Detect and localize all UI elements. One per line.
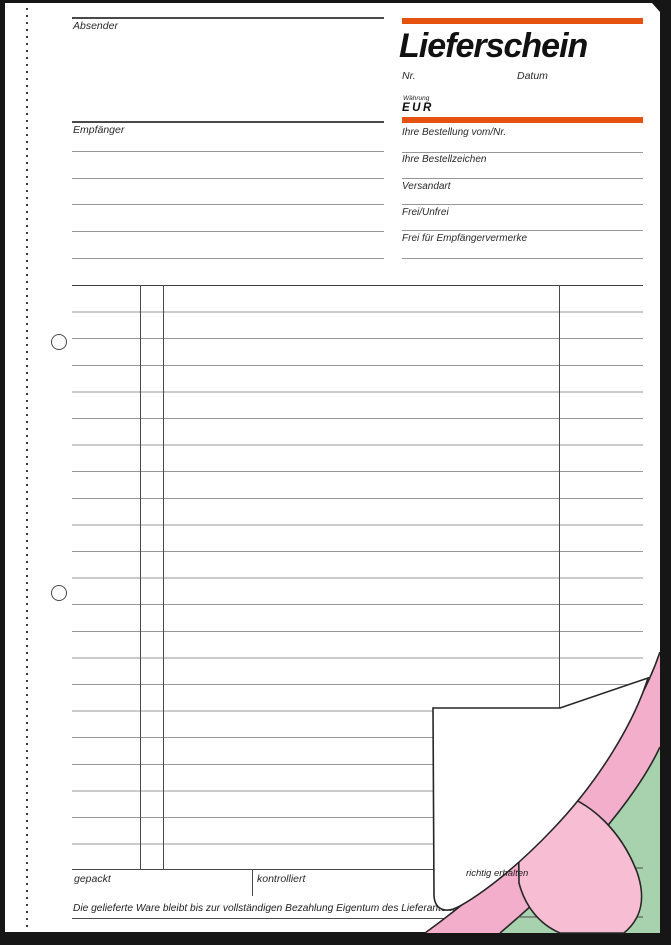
- curled-corner-copies: [0, 0, 671, 945]
- received-label: richtig erhalten: [466, 868, 528, 879]
- delivery-note-form-pad: Absender Empfänger Lieferschein Nr. Datu…: [0, 0, 671, 945]
